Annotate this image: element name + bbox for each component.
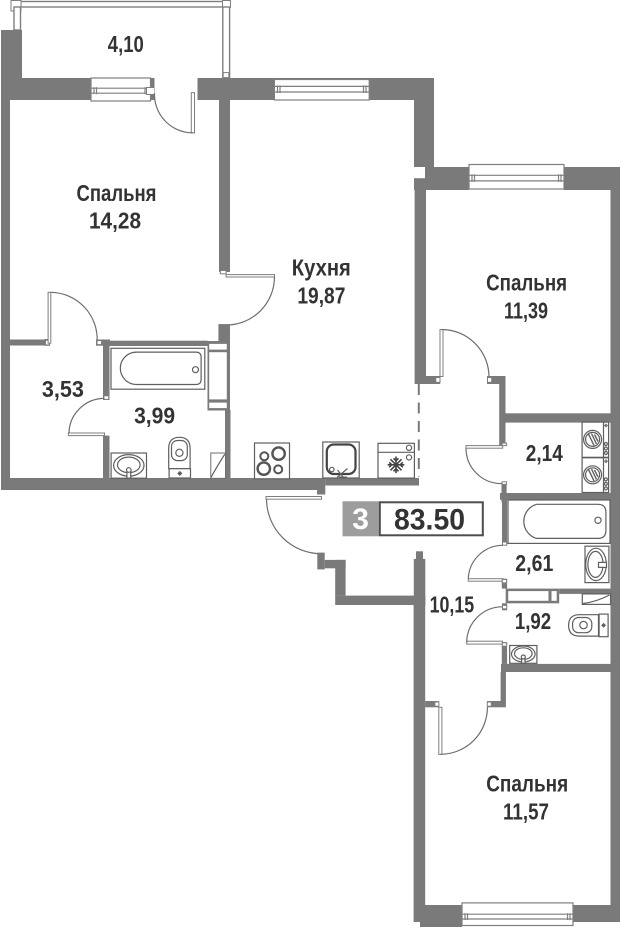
svg-text:Спальня: Спальня xyxy=(486,269,567,295)
svg-text:11,39: 11,39 xyxy=(504,298,548,324)
svg-text:4,10: 4,10 xyxy=(108,31,144,57)
svg-text:14,28: 14,28 xyxy=(89,207,141,233)
svg-text:Спальня: Спальня xyxy=(77,180,157,206)
svg-text:83.50: 83.50 xyxy=(394,504,465,537)
svg-text:3,99: 3,99 xyxy=(134,403,175,429)
svg-text:Кухня: Кухня xyxy=(292,255,351,281)
svg-text:1,92: 1,92 xyxy=(515,608,551,634)
svg-text:2,14: 2,14 xyxy=(526,440,563,466)
svg-text:10,15: 10,15 xyxy=(430,592,475,618)
svg-text:19,87: 19,87 xyxy=(297,283,345,309)
svg-text:3,53: 3,53 xyxy=(42,376,84,402)
svg-text:11,57: 11,57 xyxy=(503,799,549,825)
svg-text:3: 3 xyxy=(352,503,369,536)
svg-text:Спальня: Спальня xyxy=(486,771,568,797)
svg-text:2,61: 2,61 xyxy=(515,550,553,576)
